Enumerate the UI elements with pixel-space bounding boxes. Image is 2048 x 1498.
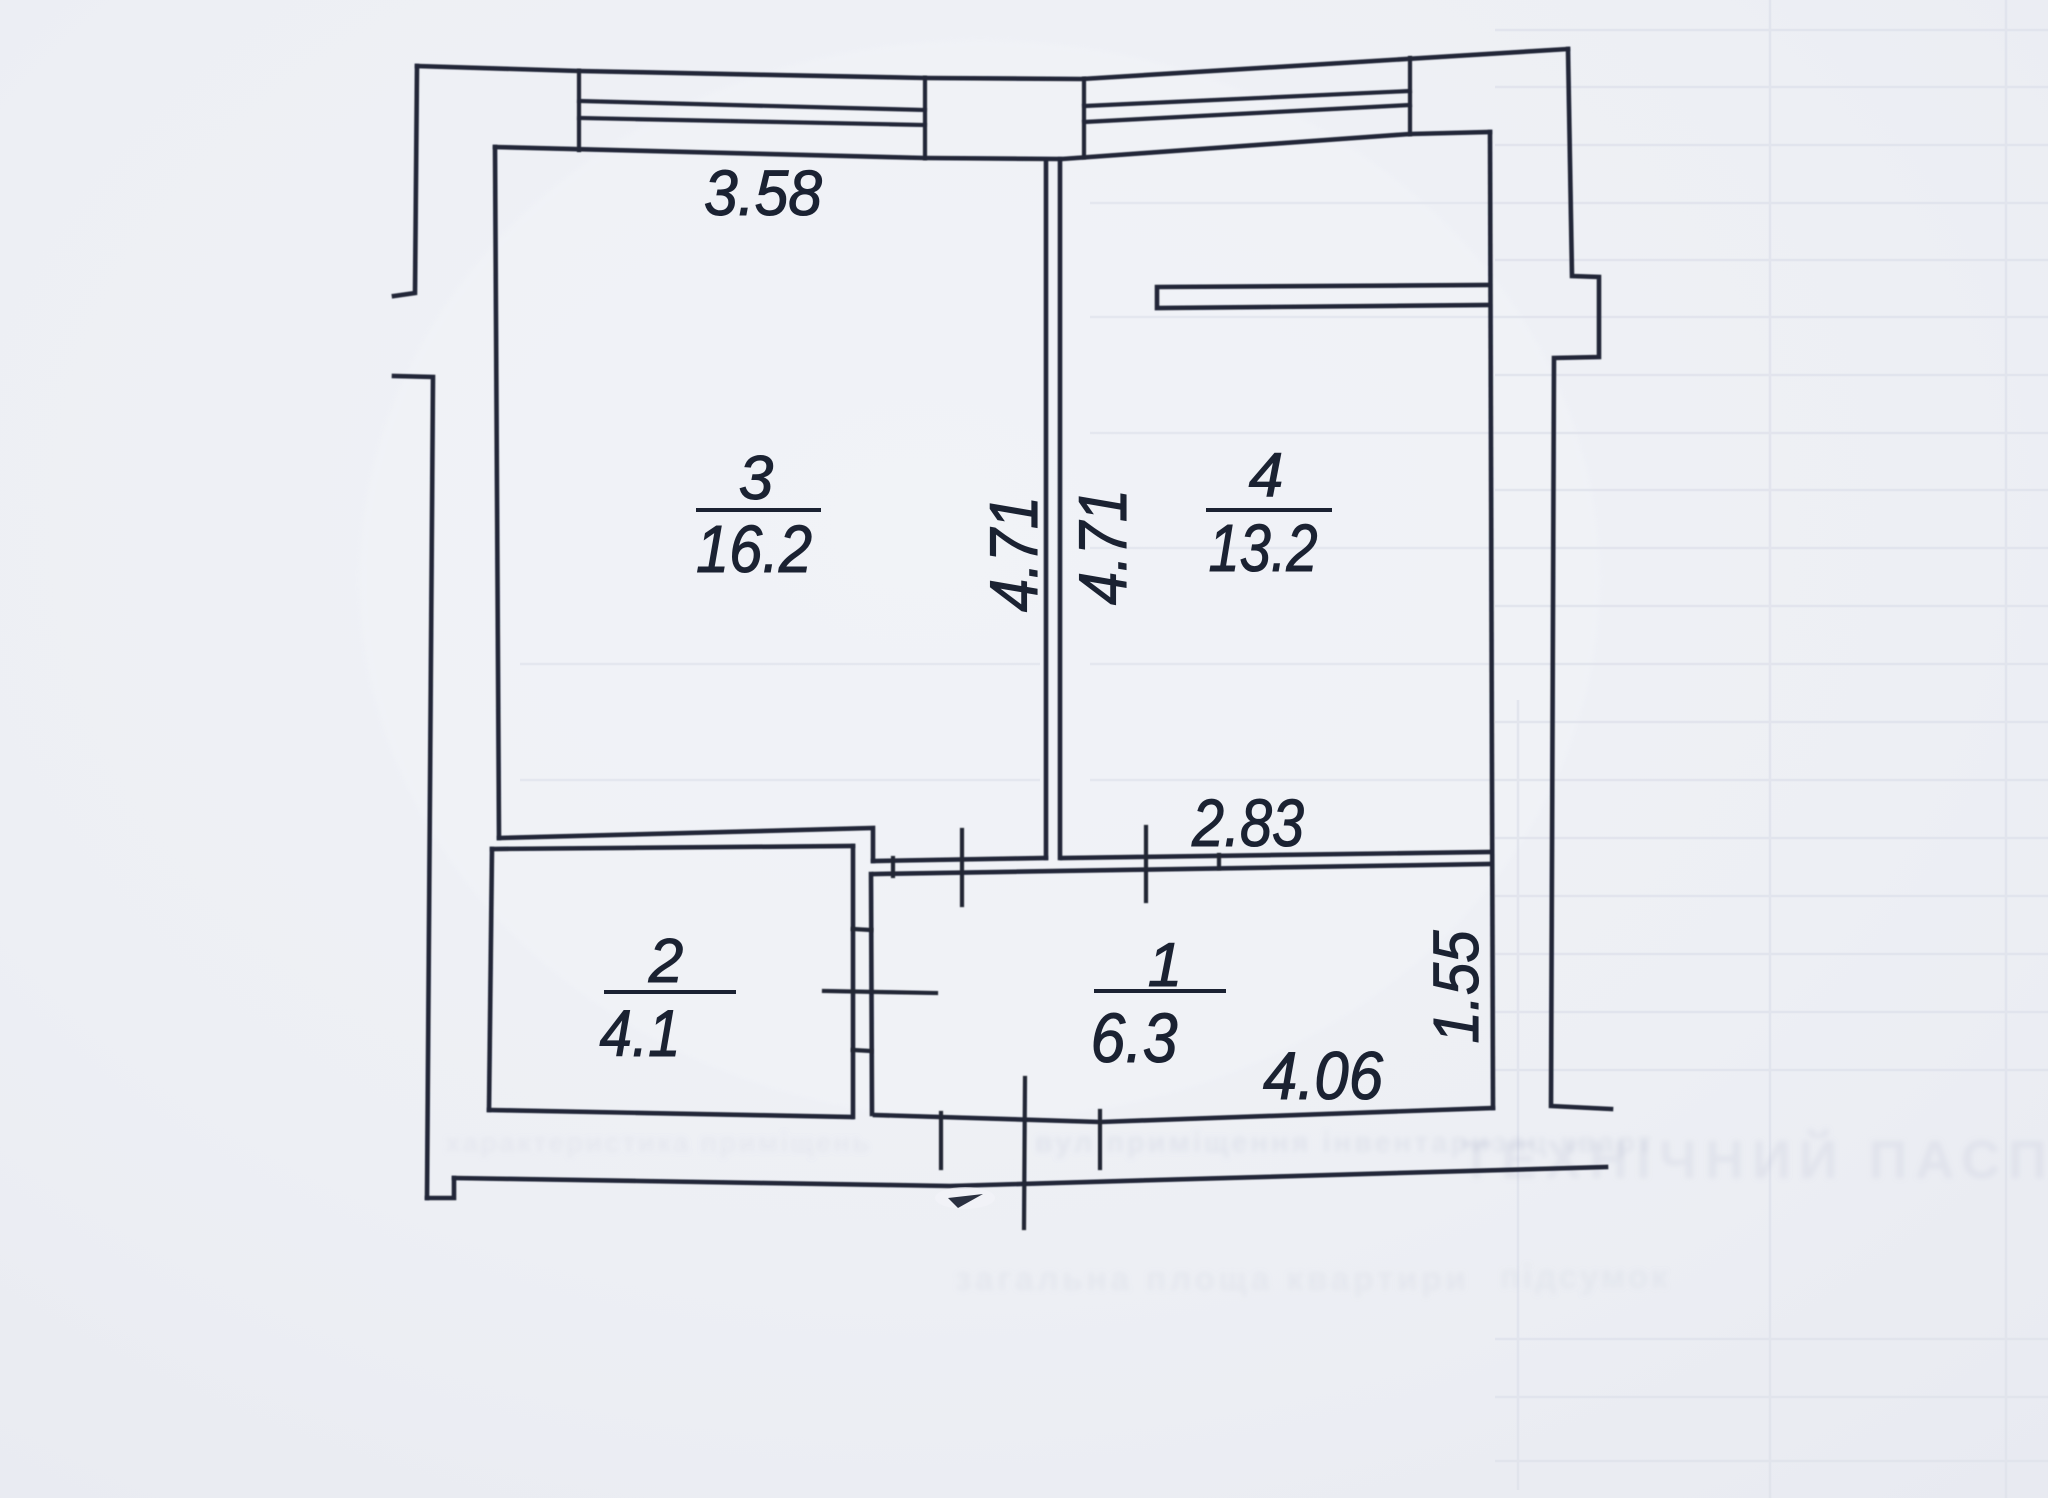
svg-text:4: 4 [1249,441,1283,510]
svg-text:4.06: 4.06 [1263,1038,1383,1114]
svg-text:3.58: 3.58 [704,157,822,229]
svg-text:6.3: 6.3 [1091,999,1178,1077]
svg-text:1.55: 1.55 [1420,930,1492,1043]
svg-text:підсумок: підсумок [1500,1258,1671,1295]
svg-text:3: 3 [739,444,773,513]
svg-text:4.71: 4.71 [976,496,1052,612]
svg-text:загальна площа квартири: загальна площа квартири [955,1260,1470,1297]
svg-text:2.83: 2.83 [1191,786,1304,861]
svg-text:4.71: 4.71 [1065,489,1141,605]
svg-text:13.2: 13.2 [1209,511,1318,586]
svg-text:характеристика приміщень: характеристика приміщень [445,1127,871,1158]
svg-text:4.1: 4.1 [600,996,681,1070]
svg-text:вул приміщення інвентаризац кв: вул приміщення інвентаризац кварт [1035,1127,1655,1159]
svg-text:16.2: 16.2 [696,512,812,587]
svg-text:2: 2 [648,927,683,996]
